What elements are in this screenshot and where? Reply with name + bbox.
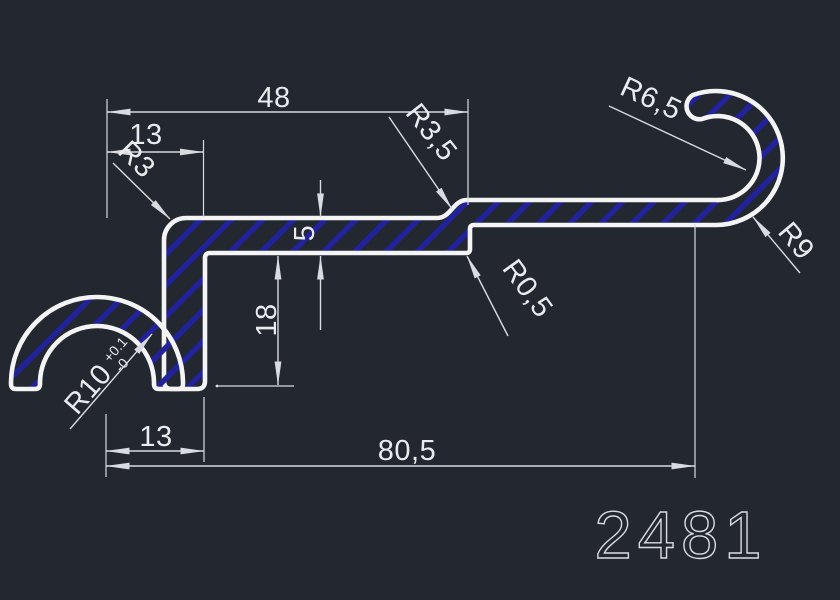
part-number: 2481: [594, 498, 767, 573]
dim-13-bottom-label: 13: [139, 421, 172, 453]
dim-18-label: 18: [251, 303, 283, 336]
radius-r10-label: R10: [58, 358, 118, 420]
profile-main-body: [164, 91, 783, 389]
radius-r6-5-label: R6,5: [615, 71, 686, 127]
dim-5-label: 5: [289, 225, 321, 242]
dim-48-label: 48: [257, 82, 290, 114]
dim-80-5-label: 80,5: [378, 435, 436, 467]
cad-canvas[interactable]: 48 13 5 18 13 80,5 R3 R3,5 R0,5 R6,5 R9 …: [0, 0, 840, 600]
radius-r3-5-label: R3,5: [399, 98, 463, 168]
reference-point: [216, 385, 219, 388]
radius-r9-label: R9: [771, 216, 820, 266]
radius-r0-5-label: R0,5: [496, 254, 559, 324]
radius-r10-label-group: R10 +0.1 -0: [58, 332, 141, 421]
